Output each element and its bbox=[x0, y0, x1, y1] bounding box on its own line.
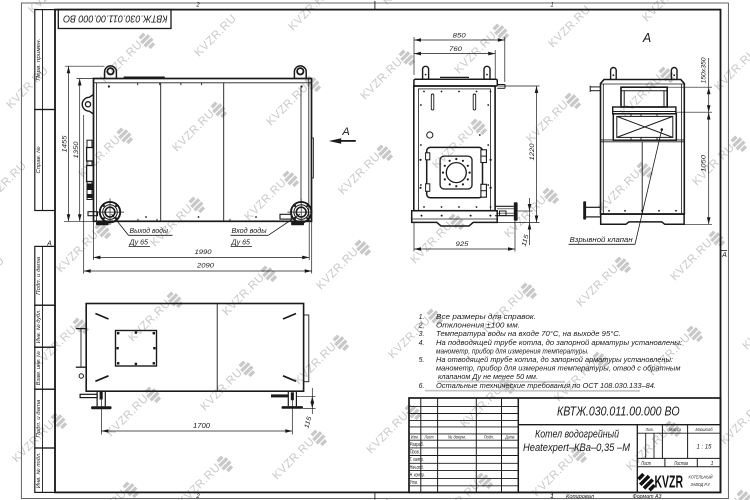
svg-text:2: 2 bbox=[195, 494, 200, 500]
svg-text:Н. контр.: Н. контр. bbox=[410, 472, 425, 478]
svg-text:Перв. примен.: Перв. примен. bbox=[36, 39, 42, 81]
svg-text:Разраб.: Разраб. bbox=[410, 442, 424, 448]
svg-text:Инв. № подл.: Инв. № подл. bbox=[36, 452, 42, 488]
svg-text:№ докум.: № докум. bbox=[448, 434, 466, 439]
svg-text:1: 1 bbox=[710, 461, 713, 467]
svg-text:А: А bbox=[642, 31, 651, 45]
svg-text:Остальные технические требован: Остальные технические требования по ОСТ … bbox=[436, 382, 656, 390]
svg-text:1455: 1455 bbox=[62, 135, 69, 152]
svg-text:Листов: Листов bbox=[673, 461, 688, 467]
svg-text:Ду 65: Ду 65 bbox=[128, 240, 148, 247]
svg-text:1: 1 bbox=[550, 494, 553, 500]
svg-text:6.: 6. bbox=[419, 383, 425, 390]
svg-text:1990: 1990 bbox=[195, 249, 212, 256]
svg-text:1700: 1700 bbox=[193, 423, 210, 430]
svg-text:1050: 1050 bbox=[701, 155, 708, 172]
svg-text:Взрывной клапан: Взрывной клапан bbox=[570, 236, 633, 244]
svg-text:Справ. №: Справ. № bbox=[36, 146, 42, 174]
svg-text:Нач.отд.: Нач.отд. bbox=[410, 465, 424, 471]
svg-text:760: 760 bbox=[449, 46, 462, 53]
svg-text:На отводящей трубе котла, до з: На отводящей трубе котла, до запорной ар… bbox=[436, 356, 673, 364]
svg-text:КВТЖ.030.011.00.000 ВО: КВТЖ.030.011.00.000 ВО bbox=[557, 404, 680, 419]
svg-text:5.: 5. bbox=[419, 357, 425, 364]
svg-text:Выход воды: Выход воды bbox=[130, 227, 169, 235]
svg-text:ЗАВОД Р.У.: ЗАВОД Р.У. bbox=[691, 482, 711, 487]
svg-text:клапаном Ду не менее 50 мм.: клапаном Ду не менее 50 мм. bbox=[438, 374, 538, 381]
svg-text:3.: 3. bbox=[419, 331, 425, 338]
svg-text:Масштаб: Масштаб bbox=[696, 427, 713, 433]
svg-text:KVZR: KVZR bbox=[655, 472, 684, 492]
svg-text:Подп. и дата: Подп. и дата bbox=[36, 257, 42, 295]
svg-text:2: 2 bbox=[195, 3, 200, 9]
svg-text:Копировал: Копировал bbox=[566, 494, 594, 500]
svg-text:Пров.: Пров. bbox=[410, 450, 420, 456]
svg-text:4.: 4. bbox=[419, 340, 425, 347]
svg-text:1220: 1220 bbox=[529, 143, 536, 160]
svg-text:Утв.: Утв. bbox=[410, 480, 418, 486]
svg-text:Температура воды на входе 70°С: Температура воды на входе 70°С, на выход… bbox=[436, 330, 621, 338]
svg-text:КВТЖ.030.011.00.000 ВО: КВТЖ.030.011.00.000 ВО bbox=[63, 12, 168, 24]
svg-text:На подводящей трубе котла, до: На подводящей трубе котла, до запорной а… bbox=[436, 339, 682, 347]
svg-text:1 : 15: 1 : 15 bbox=[697, 444, 712, 451]
svg-text:2.: 2. bbox=[418, 323, 425, 330]
svg-text:Формат А3: Формат А3 bbox=[633, 494, 663, 500]
svg-text:Лист: Лист bbox=[640, 461, 651, 467]
svg-text:Heatexpert–КВа–0,35 –М: Heatexpert–КВа–0,35 –М bbox=[523, 442, 631, 454]
svg-text:Лист: Лист bbox=[424, 434, 434, 439]
svg-text:Лит.: Лит. bbox=[645, 427, 654, 433]
svg-text:КОТЕЛЬНЫЙ: КОТЕЛЬНЫЙ bbox=[689, 473, 714, 480]
svg-text:манометр, прибор для измерения: манометр, прибор для измерения температу… bbox=[436, 365, 681, 373]
svg-text:1: 1 bbox=[550, 3, 553, 9]
svg-text:1.: 1. bbox=[419, 314, 425, 321]
svg-text:850: 850 bbox=[453, 32, 466, 39]
svg-text:1350: 1350 bbox=[73, 141, 80, 158]
svg-text:Подп. и дата: Подп. и дата bbox=[36, 399, 42, 437]
svg-text:А: А bbox=[721, 252, 727, 259]
svg-text:Взам. инв. №: Взам. инв. № bbox=[36, 351, 42, 386]
svg-text:Вход воды: Вход воды bbox=[232, 227, 267, 235]
svg-text:А: А bbox=[341, 126, 349, 138]
svg-text:Масса: Масса bbox=[669, 427, 681, 433]
svg-text:Котел водогрейный: Котел водогрейный bbox=[535, 429, 619, 441]
svg-text:Отклонения ±100 мм.: Отклонения ±100 мм. bbox=[436, 323, 520, 330]
svg-text:Т. контр.: Т. контр. bbox=[410, 457, 424, 463]
svg-text:925: 925 bbox=[456, 241, 469, 248]
svg-text:Изм.: Изм. bbox=[411, 434, 419, 439]
svg-text:манометр, прибор для измерения: манометр, прибор для измерения температу… bbox=[436, 347, 589, 355]
svg-text:Все размеры для справок.: Все размеры для справок. bbox=[436, 313, 536, 321]
svg-text:Подп.: Подп. bbox=[484, 434, 494, 439]
svg-text:150х350: 150х350 bbox=[701, 57, 708, 84]
svg-text:Дата: Дата bbox=[505, 434, 515, 439]
svg-text:Ду 65: Ду 65 bbox=[230, 240, 250, 247]
svg-text:Инв. № дубл.: Инв. № дубл. bbox=[36, 309, 42, 343]
svg-text:2090: 2090 bbox=[196, 263, 214, 270]
